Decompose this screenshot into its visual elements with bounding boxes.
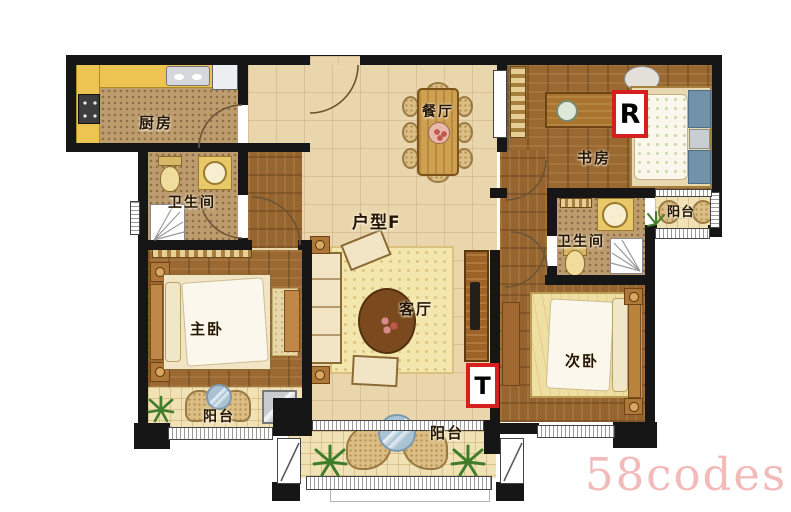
wall-segment [490,188,507,198]
wall-segment [273,398,312,436]
stove-icon [78,94,100,124]
wall-segment [645,228,655,425]
fridge-icon [212,64,238,90]
wall-segment [66,55,76,152]
step-outline [330,490,490,502]
window [306,476,492,490]
room-label-bath1: 卫生间 [168,192,216,212]
sofa-side-table [310,236,330,254]
desk-chair [556,100,578,122]
room-label-balcony-left: 阳台 [203,406,235,426]
balcony-door-track [655,189,712,197]
bookshelf [510,66,526,138]
nightstand [624,288,643,305]
window [655,228,710,239]
window [168,427,273,440]
wall-segment [547,196,557,236]
tv-icon [470,282,480,330]
room-label-study: 书房 [577,147,611,168]
study-bed-pillow [688,150,711,184]
wall-segment [248,143,310,152]
room-label-balcony-bottom: 阳台 [430,422,464,443]
corridor-floor [500,150,547,285]
casement-window [500,438,524,484]
wall-segment [238,55,248,105]
sofa-side-table [310,366,330,384]
kitchen-sink-icon [166,66,210,86]
second-bed-duvet [546,298,615,391]
armchair [351,355,399,387]
room-label-master: 主卧 [190,318,224,339]
second-dresser [502,302,520,386]
nightstand [624,398,643,415]
room-label-balcony-right: 阳台 [667,201,695,220]
wall-segment [613,422,657,448]
entrance-opening [310,56,360,65]
washbasin1-icon [203,161,227,185]
room-label-bath2: 卫生间 [557,231,605,251]
room-label-living: 客厅 [399,298,433,319]
floorplan: 厨房 卫生间 餐厅 书房 阳台 卫生间 户型F 客厅 主卧 次卧 阳台 阳台 R… [0,0,791,512]
second-bed-pillow [612,298,628,392]
door-leaf [493,70,507,138]
master-entry-nook-floor [248,152,302,248]
marker-T: T [466,363,499,408]
window [130,201,140,235]
wall-segment [484,420,500,454]
watermark: 58codes [585,448,787,501]
master-bed-headboard [150,284,163,360]
wall-segment [547,188,655,198]
toilet1-tank-icon [158,156,182,166]
towel-rack-icon [560,198,592,208]
study-bed-pillow [688,90,711,128]
room-label-second: 次卧 [565,350,599,371]
room-label-kitchen: 厨房 [139,112,173,133]
toilet1-icon [160,166,180,192]
second-bed-headboard [628,292,641,398]
fruit-plate-icon [428,122,450,144]
unit-type-label: 户型F [352,208,401,233]
wall-segment [134,423,170,449]
marker-R: R [612,90,648,138]
wall-segment [138,240,252,250]
wall-segment [302,240,312,398]
wall-segment [66,143,248,152]
wall-segment [238,143,248,195]
window [537,425,615,438]
room-label-dining: 餐厅 [422,101,454,121]
casement-window [277,438,301,484]
toilet2-icon [565,250,585,276]
wall-segment [138,143,148,427]
master-bed-pillow [165,282,181,362]
wall-segment [497,423,539,434]
study-side-table [689,129,710,149]
wall-segment [547,266,557,275]
wall-segment [66,55,722,65]
wall-segment [545,275,655,285]
master-bench [284,290,300,352]
sofa [308,252,342,364]
washbasin2-icon [602,202,628,228]
window [710,192,720,228]
shower2-icon [610,238,643,274]
